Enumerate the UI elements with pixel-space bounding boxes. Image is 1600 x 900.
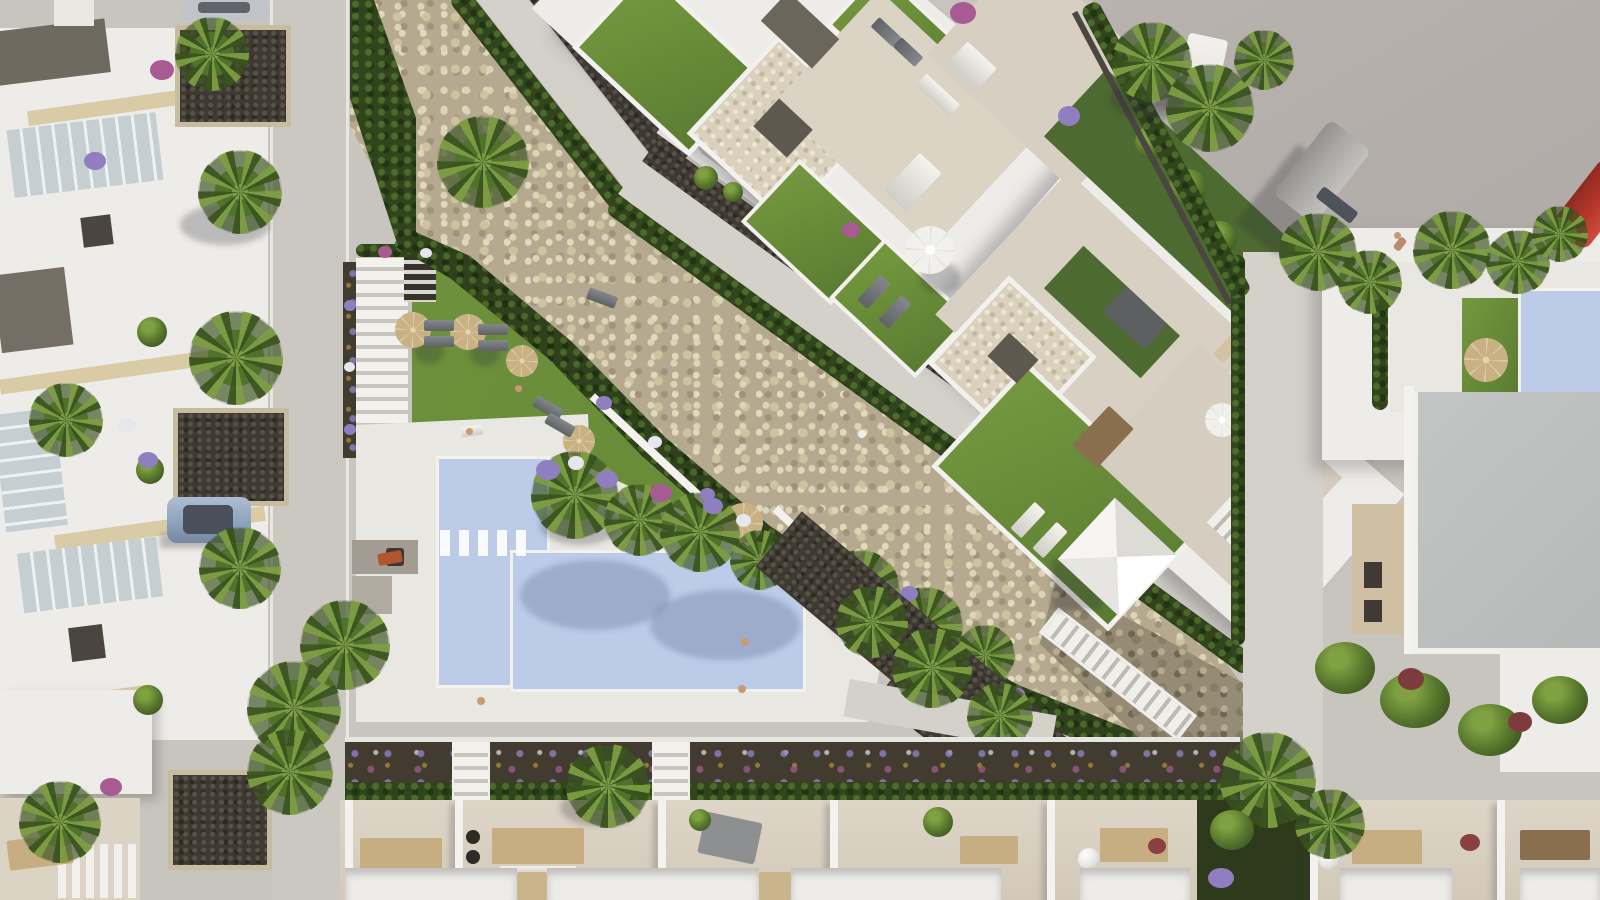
terrace7-table [1520, 830, 1590, 860]
terrace-steps-1 [452, 742, 490, 804]
bush-left-3 [133, 685, 163, 715]
bottom-roof-4 [1080, 868, 1190, 900]
wicker-parasol-8 [1464, 338, 1508, 382]
gate-pillar [54, 0, 94, 26]
veg-blob-1 [1315, 642, 1375, 694]
flower-left-4 [138, 452, 158, 468]
flowers-magenta-1 [650, 484, 672, 502]
flower-left-1 [150, 60, 174, 80]
flower-hedge-1 [378, 246, 392, 258]
terrace2-grill-2 [466, 850, 480, 864]
complex-flower-3 [842, 222, 860, 238]
pool-palm-shadow-1 [520, 560, 670, 630]
complex-flower-2 [1058, 106, 1080, 126]
promenade-walker [858, 430, 866, 438]
terrace6-red-plant [1460, 834, 1480, 851]
flowers-purple-1 [536, 460, 560, 480]
bottom-roof-6 [1520, 868, 1600, 900]
bottom-roof-2 [547, 868, 759, 900]
palm-left-7 [19, 781, 101, 863]
flowers-white-1 [568, 456, 584, 470]
flower-slat-1 [344, 300, 356, 311]
garden-bed-bush [1210, 810, 1254, 850]
terrace3-plant [689, 809, 711, 831]
street-car-windows [198, 2, 250, 13]
lawn-lounger-1 [424, 320, 454, 331]
lawn-lounger-4 [478, 340, 508, 351]
palm-se-2 [892, 628, 972, 708]
terrace4-table [960, 836, 1018, 864]
aerial-render-scene [0, 0, 1600, 900]
sunbather [466, 428, 473, 435]
flowers-purple-2 [596, 470, 618, 488]
flower-slat-2 [344, 362, 355, 372]
terrace-wall-4 [1047, 800, 1055, 900]
flower-left-3 [118, 418, 136, 433]
bush-left-1 [137, 317, 167, 347]
veg-blob-4 [1532, 676, 1588, 724]
palm-bottom-1 [566, 744, 650, 828]
terrace-steps-2 [652, 742, 690, 804]
strip-flower-2 [648, 436, 662, 448]
bottom-canopy-2 [759, 872, 791, 900]
white-parasol-1 [906, 226, 954, 274]
palm-left-8 [300, 600, 390, 690]
grey-roof-large [1412, 392, 1600, 654]
red-plant-2 [1508, 712, 1532, 732]
bottom-canopy-1 [517, 872, 547, 900]
complex-bush-2 [723, 182, 743, 202]
palm-left-3 [189, 311, 283, 405]
terrace2-table [492, 828, 584, 864]
flower-left-2 [84, 152, 106, 170]
lounger-person [515, 385, 522, 392]
bottom-left-roof [0, 690, 152, 794]
ac-unit-2 [68, 624, 106, 662]
palm-bottom-3 [1295, 789, 1365, 859]
palm-left-5 [199, 527, 281, 609]
bottom-roof-5 [1340, 868, 1452, 900]
slat-path [356, 258, 408, 448]
roof-dark-left-2 [0, 267, 73, 353]
ac-unit-1 [80, 214, 113, 247]
palm-rambla-top [437, 116, 529, 208]
bottom-roof-3 [791, 868, 1001, 900]
deck-walker [477, 697, 485, 705]
palm-tr-3 [1234, 30, 1294, 90]
swimmer-1 [741, 638, 749, 646]
swimmer-2 [738, 685, 746, 693]
flowers-white-2 [736, 514, 751, 527]
wicker-parasol-3 [506, 345, 538, 377]
right-path-hedge [1231, 255, 1245, 645]
palm-left-4 [29, 383, 103, 457]
red-plant-1 [1398, 668, 1424, 690]
strip-flower-3 [700, 488, 715, 501]
lawn-lounger-2 [424, 336, 454, 347]
bottom-roof-1 [345, 868, 517, 900]
lawn-lounger-3 [478, 324, 508, 335]
flower-hedge-2 [420, 248, 432, 258]
palm-tr-5 [1338, 250, 1402, 314]
palm-left-2 [198, 150, 282, 234]
complex-flower-1 [950, 2, 976, 24]
palm-tr-6 [1413, 211, 1491, 289]
strip-flower-1 [596, 396, 612, 410]
beige-building-window-2 [1364, 600, 1382, 622]
pool-steps [440, 530, 532, 556]
terrace1-table [360, 838, 442, 872]
terrace4-tree [923, 807, 953, 837]
terrace-wall-6 [1497, 800, 1505, 900]
palm-pool-3 [660, 492, 740, 572]
beige-building-window-1 [1364, 562, 1382, 588]
gravel-bed-2 [173, 408, 289, 506]
complex-bush-1 [694, 166, 718, 190]
palm-tr-8 [1532, 206, 1588, 262]
flower-left-5 [100, 778, 122, 796]
sphere-lamp-1 [1078, 848, 1100, 870]
flower-slat-3 [344, 424, 356, 435]
garden-bed-flowers [1208, 868, 1234, 888]
palm-left-9 [247, 729, 333, 815]
palm-left-1 [175, 17, 249, 91]
terrace2-grill-1 [466, 830, 480, 844]
terrace5-red-plant [1148, 838, 1166, 854]
pool-palm-shadow-2 [650, 590, 800, 660]
